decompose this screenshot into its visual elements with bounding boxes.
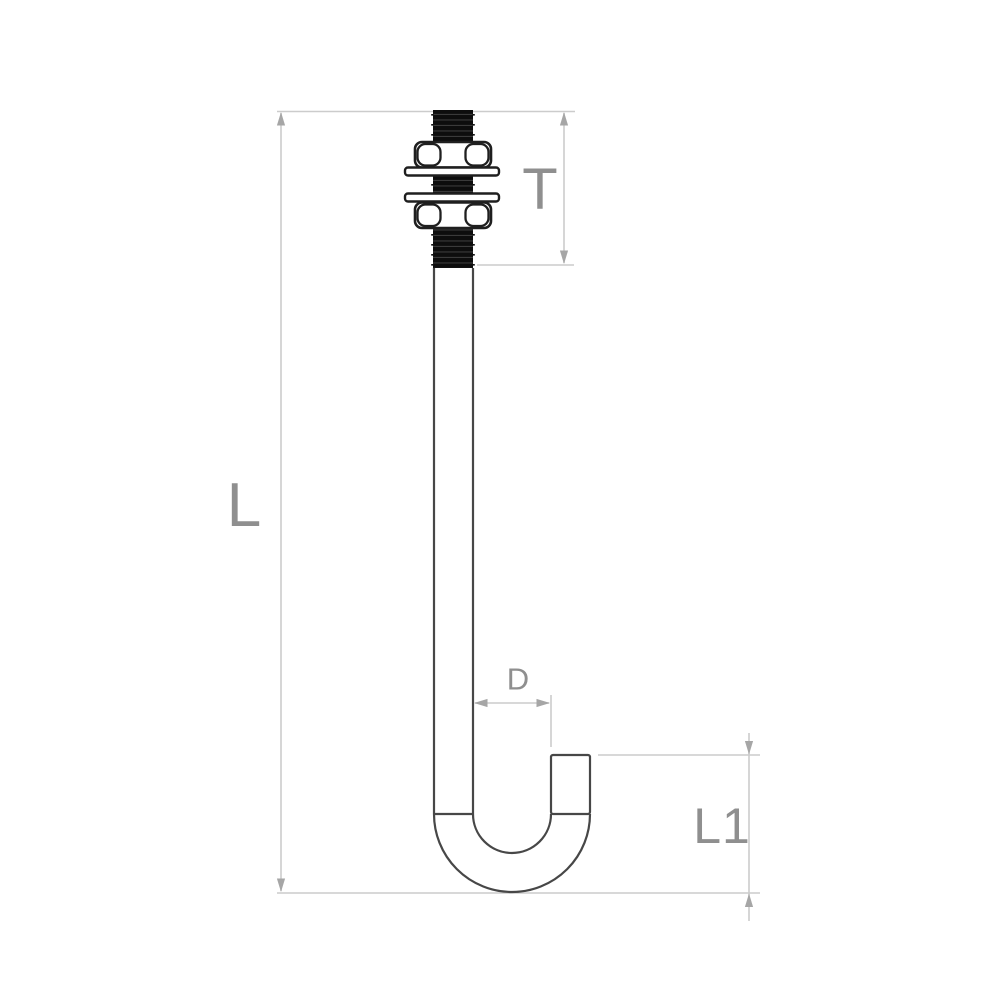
hex-nut-bottom <box>415 203 491 229</box>
washer-bottom <box>405 194 499 202</box>
washer-top <box>405 168 499 176</box>
technical-drawing-canvas: L T D L1 <box>0 0 1000 1000</box>
arrow-T-top <box>560 112 568 126</box>
arrow-D-left <box>474 699 488 707</box>
dimension-label-hook-diameter: D <box>507 664 529 695</box>
dimension-layer <box>277 112 760 922</box>
dimension-arrowheads <box>277 112 753 907</box>
arrow-L1-bottom <box>745 894 753 908</box>
hex-nut-top <box>415 142 491 168</box>
thread-body <box>433 110 473 268</box>
dimension-label-overall-length: L <box>227 475 261 537</box>
dimension-label-thread-length: T <box>522 161 557 219</box>
arrow-L1-top <box>745 741 753 755</box>
arrow-T-bottom <box>560 251 568 265</box>
bolt-silhouette <box>434 268 590 892</box>
arrow-L-top <box>277 112 285 126</box>
hex-nut-top-body <box>415 142 491 168</box>
j-bolt-part <box>405 110 590 892</box>
thread-section <box>432 110 473 268</box>
hex-nut-bottom-body <box>415 203 491 229</box>
j-bolt-diagram <box>0 0 1000 1000</box>
dimension-label-hook-height: L1 <box>693 801 751 851</box>
arrow-D-right <box>537 699 551 707</box>
arrow-L-bottom <box>277 879 285 893</box>
